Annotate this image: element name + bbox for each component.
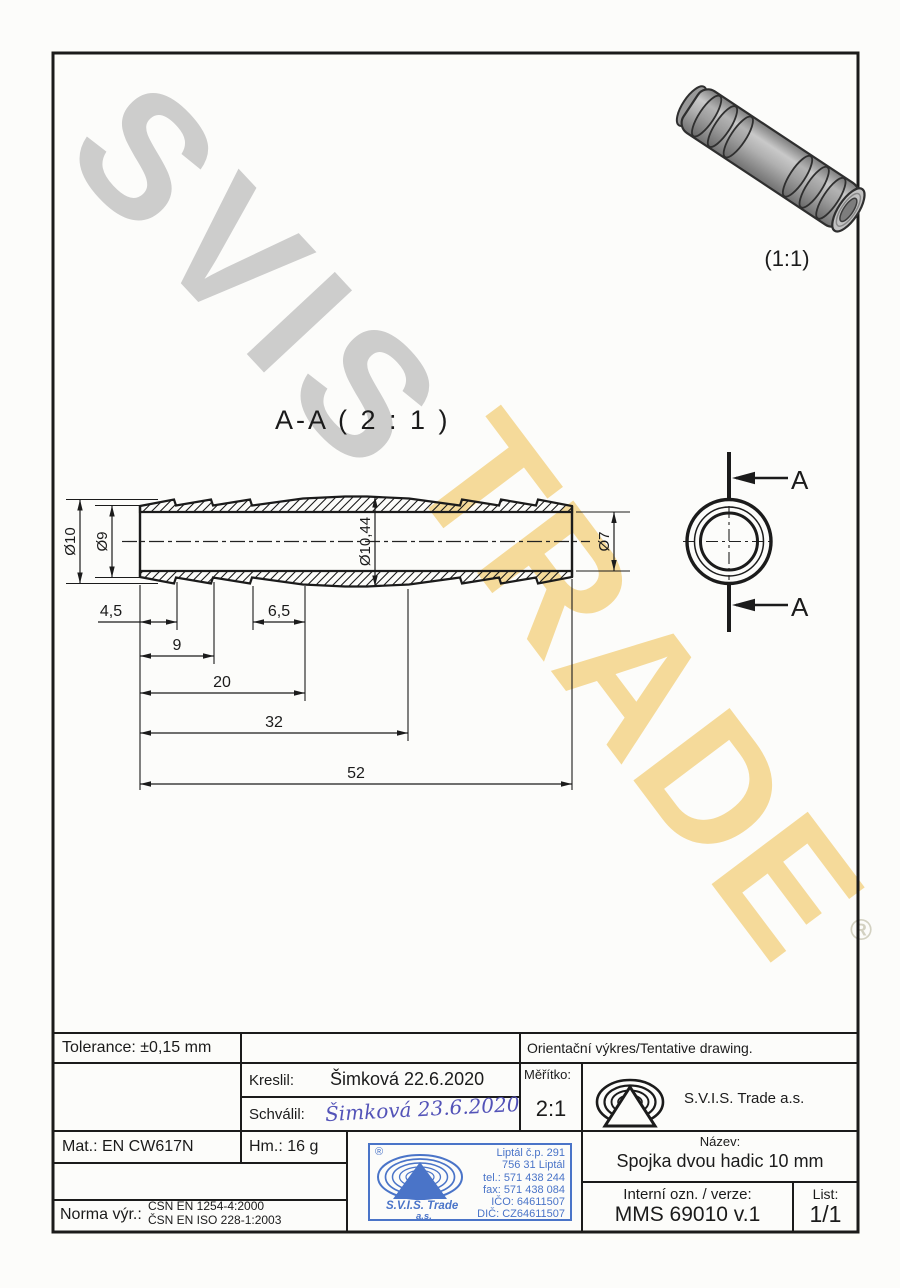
norma-line2: ČSN EN ISO 228-1:2003	[148, 1214, 281, 1228]
kreslil-label: Kreslil:	[249, 1072, 294, 1089]
stamp-address-line: fax: 571 438 084	[477, 1184, 565, 1196]
end-view: A A	[683, 452, 809, 632]
drawing-sheet: SVIS TRADE ®	[0, 0, 900, 1288]
stamp-address-line: 756 31 Liptál	[477, 1159, 565, 1171]
company-logo	[597, 1080, 663, 1126]
cut-label-bottom: A	[791, 592, 809, 622]
stamp-address-line: DIČ: CZ64611507	[477, 1208, 565, 1220]
interni-label: Interní ozn. / verze:	[582, 1186, 793, 1203]
stamp-company-suffix: a.s.	[416, 1211, 432, 1222]
dim-od7: Ø7	[596, 531, 613, 551]
meritko-label: Měřítko:	[524, 1068, 571, 1083]
list-label: List:	[793, 1186, 858, 1202]
stamp-address-line: tel.: 571 438 244	[477, 1172, 565, 1184]
dimension-texts: Ø10 Ø9 Ø10,44 Ø7 4,5 6,5 9 20 32 52	[62, 517, 613, 782]
norma-label: Norma výr.:	[60, 1206, 142, 1224]
dimension-arrowheads	[77, 497, 616, 787]
dim-65: 6,5	[268, 603, 290, 620]
dim-od10: Ø10	[62, 527, 79, 555]
dim-32: 32	[265, 714, 283, 731]
kreslil-value: Šimková 22.6.2020	[330, 1069, 484, 1090]
section-view-label: A-A ( 2 : 1 )	[275, 405, 451, 435]
dim-45: 4,5	[100, 603, 122, 620]
interni-value: MMS 69010 v.1	[582, 1203, 793, 1227]
dim-9: 9	[173, 637, 182, 654]
company-name: S.V.I.S. Trade a.s.	[684, 1090, 804, 1107]
stamp-registered-icon: ®	[375, 1146, 383, 1158]
dim-od-mid: Ø10,44	[357, 517, 374, 566]
cut-label-top: A	[791, 465, 809, 495]
part-bottom-wall	[140, 571, 572, 587]
dim-52: 52	[347, 765, 365, 782]
stamp-address-line: IČO: 64611507	[477, 1196, 565, 1208]
photo-scale-label: (1:1)	[764, 246, 809, 271]
nazev-value: Spojka dvou hadic 10 mm	[582, 1151, 858, 1172]
meritko-value: 2:1	[520, 1096, 582, 1121]
norma-line1: ČSN EN 1254-4:2000	[148, 1200, 264, 1214]
part-photo-3d	[670, 80, 870, 236]
schvalil-label: Schválil:	[249, 1106, 305, 1123]
section-view	[122, 497, 590, 587]
dim-20: 20	[213, 674, 231, 691]
nazev-label: Název:	[582, 1135, 858, 1150]
tentative-drawing-text: Orientační výkres/Tentative drawing.	[527, 1040, 753, 1056]
part-top-wall	[140, 497, 572, 513]
material-text: Mat.: EN CW617N	[62, 1138, 194, 1156]
dimensions	[66, 497, 630, 791]
dim-od9: Ø9	[94, 531, 111, 551]
weight-text: Hm.: 16 g	[249, 1138, 318, 1156]
stamp-address-line: Liptál č.p. 291	[477, 1147, 565, 1159]
list-value: 1/1	[793, 1201, 858, 1227]
company-stamp: ® Liptál č.p. 291 756 31 Liptál tel.: 57…	[368, 1143, 572, 1221]
tolerance-text: Tolerance: ±0,15 mm	[62, 1039, 211, 1057]
stamp-address: Liptál č.p. 291 756 31 Liptál tel.: 571 …	[477, 1147, 565, 1221]
